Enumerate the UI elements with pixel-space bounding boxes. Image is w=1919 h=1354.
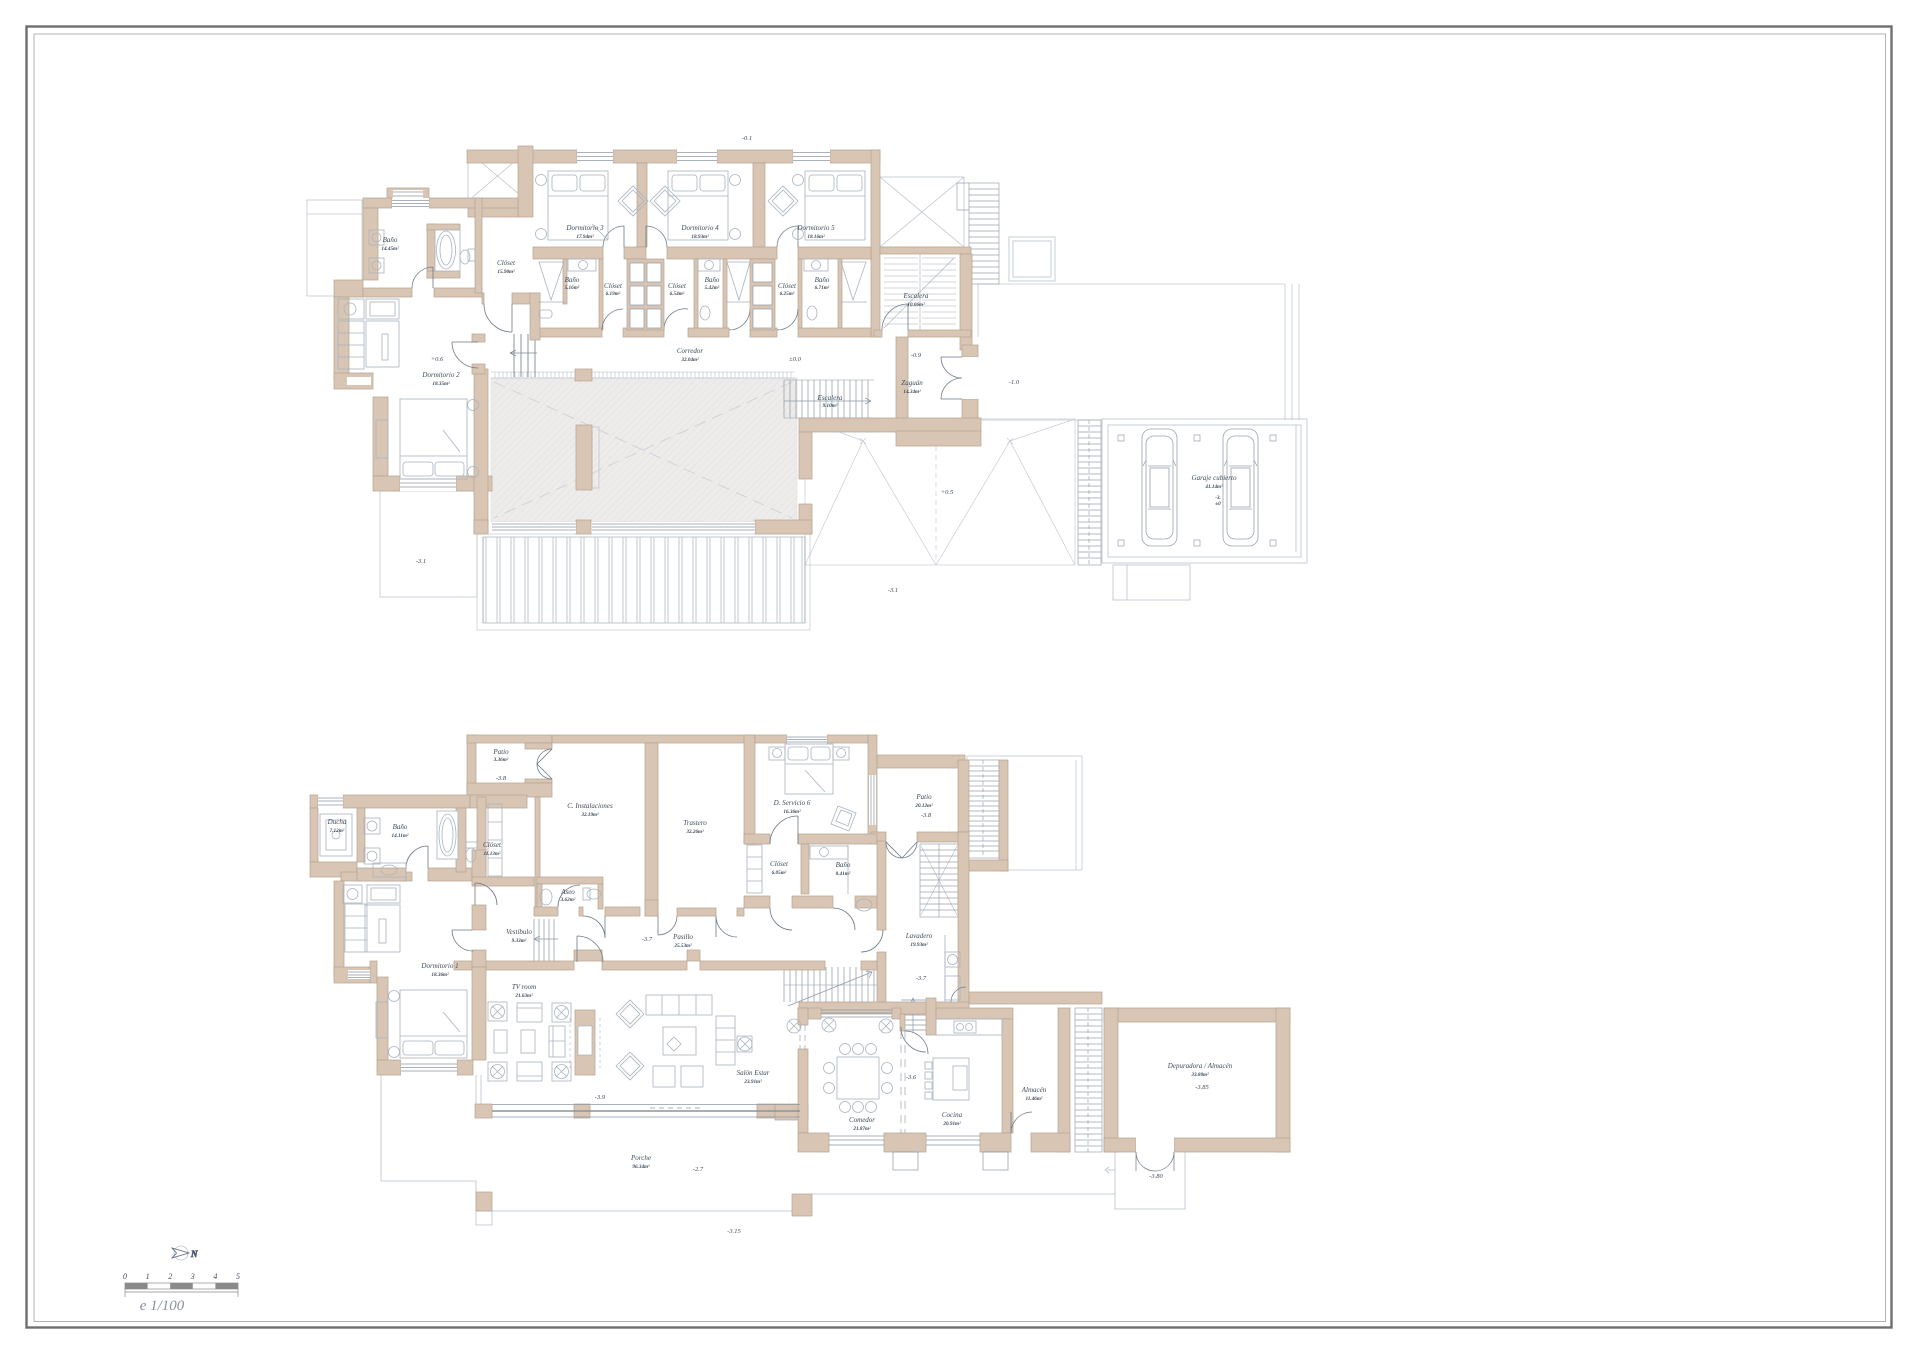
svg-text:Clóset: Clóset (770, 860, 789, 868)
svg-text:Baño: Baño (836, 861, 851, 869)
svg-text:9.10m²: 9.10m² (823, 403, 838, 409)
svg-text:41.14m²: 41.14m² (1204, 484, 1223, 490)
svg-text:+0.5: +0.5 (941, 489, 954, 496)
svg-text:20.12m²: 20.12m² (914, 803, 933, 809)
svg-text:11.13m²: 11.13m² (484, 851, 501, 857)
svg-text:Patio: Patio (492, 748, 509, 756)
svg-text:14.11m²: 14.11m² (392, 833, 409, 839)
svg-text:Dormitorio 2: Dormitorio 2 (421, 371, 460, 379)
svg-text:3.62m²: 3.62m² (560, 897, 576, 903)
svg-text:-2.7: -2.7 (693, 1166, 704, 1173)
svg-text:Trastero: Trastero (683, 819, 707, 827)
svg-text:-3.6: -3.6 (906, 1074, 917, 1081)
svg-text:-3.15: -3.15 (727, 1228, 741, 1235)
svg-text:D. Servicio 6: D. Servicio 6 (773, 799, 811, 807)
svg-text:-0.9: -0.9 (911, 352, 922, 359)
svg-text:0: 0 (123, 1272, 127, 1281)
svg-text:-3.1: -3.1 (416, 558, 426, 565)
svg-text:Clóset: Clóset (778, 282, 797, 290)
svg-text:C. Instalaciones: C. Instalaciones (567, 802, 613, 810)
svg-text:-3.1: -3.1 (888, 587, 898, 594)
svg-text:1: 1 (146, 1272, 150, 1281)
svg-text:2: 2 (168, 1272, 172, 1281)
svg-text:±0.0: ±0.0 (789, 356, 801, 363)
svg-text:-3.8: -3.8 (921, 812, 932, 819)
svg-text:-3.7: -3.7 (916, 975, 927, 982)
svg-text:e 1/100: e 1/100 (140, 1298, 185, 1314)
svg-text:14.34m²: 14.34m² (903, 389, 921, 395)
svg-text:25.53m²: 25.53m² (673, 943, 692, 949)
svg-text:5: 5 (236, 1272, 240, 1281)
svg-text:Comedor: Comedor (849, 1116, 875, 1124)
svg-text:-3.80: -3.80 (1149, 1173, 1163, 1180)
svg-text:6.54m²: 6.54m² (670, 291, 685, 297)
svg-text:Zaguán: Zaguán (901, 379, 923, 387)
svg-text:21.63m²: 21.63m² (514, 993, 533, 999)
svg-text:9.33m²: 9.33m² (512, 938, 527, 944)
svg-text:Dormitorio 1: Dormitorio 1 (420, 962, 458, 970)
svg-text:23.91m²: 23.91m² (743, 1079, 762, 1085)
svg-text:Pasillo: Pasillo (672, 933, 693, 941)
svg-text:20.91m²: 20.91m² (942, 1121, 961, 1127)
svg-text:Baño: Baño (815, 276, 830, 284)
svg-text:Ducha: Ducha (327, 818, 347, 826)
svg-text:19.93m²: 19.93m² (910, 942, 928, 948)
svg-text:Dormitorio 3: Dormitorio 3 (565, 224, 604, 232)
svg-text:Clóset: Clóset (483, 841, 502, 849)
svg-text:14.45m²: 14.45m² (381, 246, 399, 252)
svg-text:6.05m²: 6.05m² (772, 870, 787, 876)
svg-text:33.80m²: 33.80m² (1190, 1072, 1209, 1078)
svg-text:Garaje cubierto: Garaje cubierto (1192, 474, 1237, 482)
svg-text:10.06m²: 10.06m² (907, 302, 925, 308)
svg-text:8.41m²: 8.41m² (836, 871, 851, 877)
svg-text:Clóset: Clóset (668, 282, 687, 290)
svg-text:TV room: TV room (512, 983, 536, 991)
svg-text:6.71m²: 6.71m² (815, 285, 830, 291)
svg-text:-1.0: -1.0 (1009, 379, 1020, 386)
svg-text:±0: ±0 (1215, 501, 1221, 507)
svg-text:Escalera: Escalera (903, 292, 929, 300)
svg-text:18.35m²: 18.35m² (432, 381, 450, 387)
svg-text:Dormitorio 5: Dormitorio 5 (796, 224, 835, 232)
svg-text:3.36m²: 3.36m² (493, 757, 509, 763)
svg-text:Vestíbulo: Vestíbulo (506, 928, 532, 936)
svg-text:Porche: Porche (630, 1154, 651, 1162)
svg-text:-3.85: -3.85 (1195, 1084, 1209, 1091)
svg-text:7.12m²: 7.12m² (330, 828, 345, 834)
svg-text:17.94m²: 17.94m² (576, 234, 594, 240)
svg-text:Baño: Baño (705, 276, 720, 284)
svg-text:Baño: Baño (565, 276, 580, 284)
svg-text:-3.7: -3.7 (642, 936, 653, 943)
svg-text:16.36m²: 16.36m² (783, 809, 801, 815)
svg-text:18.93m²: 18.93m² (691, 234, 709, 240)
svg-text:Almacén: Almacén (1021, 1086, 1047, 1094)
svg-text:Baño: Baño (393, 823, 408, 831)
svg-text:6.19m²: 6.19m² (606, 291, 621, 297)
svg-text:-3.9: -3.9 (595, 1094, 606, 1101)
svg-text:Depuradora / Almacén: Depuradora / Almacén (1167, 1062, 1233, 1070)
svg-text:3: 3 (190, 1272, 195, 1281)
svg-text:32.26m²: 32.26m² (685, 829, 704, 835)
svg-text:32.04m²: 32.04m² (680, 357, 699, 363)
svg-text:96.34m²: 96.34m² (632, 1164, 650, 1170)
svg-text:21.87m²: 21.87m² (852, 1126, 871, 1132)
svg-text:5.16m²: 5.16m² (565, 285, 580, 291)
svg-text:4: 4 (213, 1272, 217, 1281)
svg-text:N: N (190, 1249, 198, 1259)
svg-text:-3.8: -3.8 (496, 775, 507, 782)
svg-text:Baño: Baño (383, 236, 398, 244)
svg-text:15.90m²: 15.90m² (497, 269, 515, 275)
svg-text:Aseo: Aseo (560, 888, 575, 896)
svg-text:5.42m²: 5.42m² (705, 285, 720, 291)
svg-text:+0.6: +0.6 (431, 356, 444, 363)
svg-text:18.16m²: 18.16m² (807, 234, 825, 240)
svg-text:Patio: Patio (915, 793, 932, 801)
svg-text:Salón Estar: Salón Estar (737, 1069, 770, 1077)
svg-text:Corredor: Corredor (677, 347, 703, 355)
svg-text:Cocina: Cocina (942, 1111, 963, 1119)
svg-text:11.46m²: 11.46m² (1026, 1096, 1043, 1102)
svg-text:18.36m²: 18.36m² (431, 972, 449, 978)
svg-text:Clóset: Clóset (604, 282, 623, 290)
svg-text:Clóset: Clóset (497, 259, 516, 267)
svg-text:Lavadero: Lavadero (905, 932, 933, 940)
svg-text:Escalera: Escalera (817, 394, 843, 402)
svg-text:Dormitorio 4: Dormitorio 4 (680, 224, 719, 232)
svg-text:-0.1: -0.1 (742, 135, 752, 142)
svg-text:6.25m²: 6.25m² (780, 291, 795, 297)
svg-text:32.19m²: 32.19m² (580, 812, 599, 818)
